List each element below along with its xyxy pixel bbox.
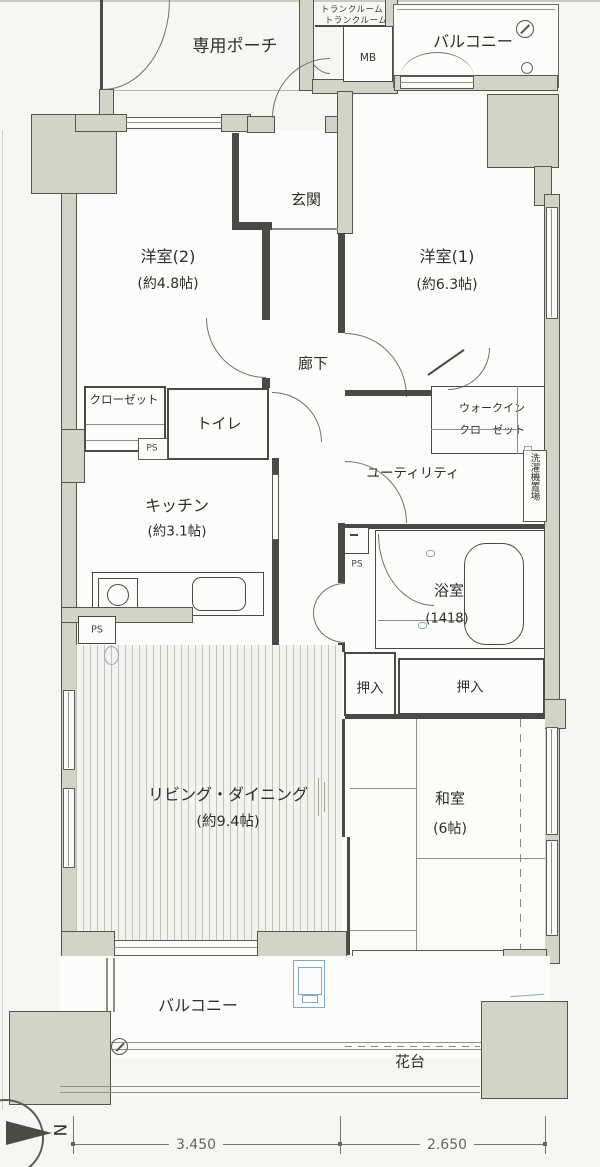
mb-label: MB bbox=[360, 53, 376, 64]
west1-bottom-wall bbox=[345, 390, 431, 396]
west1-size-label: (約6.3帖) bbox=[416, 278, 477, 292]
pencil-mark-2 bbox=[324, 782, 325, 812]
living-left-window-1 bbox=[63, 690, 75, 770]
floor-plan: 専用ポーチ トランクルーム トランクルーム MB バルコニー 玄関 廊下 洋室(… bbox=[0, 0, 600, 1167]
entrance-right-wall bbox=[338, 92, 352, 233]
kitchen-right-wall-b bbox=[272, 540, 279, 652]
ps-box-2-mark bbox=[350, 534, 358, 536]
west2-window-line bbox=[126, 122, 222, 123]
ps-label-3: PS bbox=[91, 625, 103, 635]
drain-icon bbox=[516, 20, 534, 38]
porch-label: 専用ポーチ bbox=[193, 39, 278, 56]
west1-window-line bbox=[551, 209, 552, 317]
living-label: リビング・ダイニング bbox=[148, 787, 308, 803]
scan-edge-left bbox=[2, 130, 3, 1110]
wic-label-1: ウォークイン bbox=[459, 403, 525, 414]
wic-divider-line bbox=[517, 386, 518, 454]
living-left-window-2 bbox=[63, 788, 75, 868]
jroom-sliding-door-1 bbox=[342, 719, 345, 837]
living-balcony-window-line bbox=[114, 947, 260, 948]
closet-label: クローゼット bbox=[90, 394, 159, 406]
bathroom-size-label: (1418) bbox=[425, 613, 468, 626]
balcony-window-line bbox=[400, 82, 474, 83]
right-top-corner-block bbox=[488, 95, 558, 167]
left-wall-jog bbox=[62, 430, 84, 482]
living-mark bbox=[104, 646, 119, 665]
tatami-line-h1 bbox=[350, 788, 416, 789]
living-balcony-window bbox=[114, 940, 260, 956]
stove-burner bbox=[107, 584, 129, 606]
flower-bed-label: 花台 bbox=[395, 1055, 425, 1070]
wall-jog bbox=[232, 222, 272, 230]
tatami-line-h3 bbox=[416, 858, 545, 859]
jroom-top-right-block bbox=[545, 700, 565, 728]
jroom-right-window-line-1 bbox=[551, 729, 552, 833]
compass-needle bbox=[6, 1121, 52, 1145]
kitchen-right-wall-a bbox=[272, 458, 279, 474]
tatami-line-h2 bbox=[350, 930, 416, 931]
living-left-window-line-1 bbox=[68, 692, 69, 768]
dim-line bbox=[73, 1144, 545, 1145]
toilet-label: トイレ bbox=[196, 417, 241, 432]
oshiire-right-label: 押入 bbox=[457, 681, 484, 695]
wic-room bbox=[431, 386, 545, 454]
hallway-label: 廊下 bbox=[298, 357, 328, 372]
bathtub bbox=[464, 543, 524, 645]
wic-shelf-line bbox=[431, 429, 517, 430]
bottom-right-block bbox=[482, 1002, 567, 1098]
sink bbox=[192, 577, 246, 611]
jroom-right-window-1 bbox=[546, 727, 558, 835]
dim-tick-left bbox=[73, 1116, 74, 1154]
ps-label-1: PS bbox=[146, 445, 157, 454]
dim-tick-mid bbox=[340, 1116, 341, 1154]
jroom-top-wall bbox=[345, 714, 545, 719]
balcony-drain-icon bbox=[111, 1038, 128, 1055]
flower-bed-rail-2 bbox=[60, 1092, 480, 1093]
dim-label-left: 3.450 bbox=[169, 1138, 223, 1152]
porch-door-arc bbox=[103, 0, 170, 90]
hall-left-wall-upper bbox=[262, 230, 270, 320]
balcony-rail-line-1 bbox=[95, 1042, 545, 1043]
kitchen-size-label: (約3.1帖) bbox=[147, 525, 206, 539]
balcony-faucet-box bbox=[293, 960, 325, 1008]
hall-wall-stub-top bbox=[338, 575, 345, 583]
hall-left-wall-stub bbox=[262, 378, 270, 388]
entrance-door-arc bbox=[272, 58, 330, 118]
bath-tap-mark-1 bbox=[426, 550, 435, 557]
west2-top-wall-a bbox=[76, 115, 126, 131]
west2-size-label: (約4.8帖) bbox=[137, 277, 198, 291]
entrance-step-line bbox=[272, 228, 338, 230]
kitchen-label: キッチン bbox=[145, 498, 209, 514]
jroom-right-window-line-2 bbox=[551, 842, 552, 934]
entrance-top-wall-a bbox=[248, 117, 274, 132]
closet-shelf-line-1 bbox=[86, 424, 164, 425]
porch-column-line-2 bbox=[113, 958, 115, 1012]
dim-dot-mid bbox=[338, 1142, 342, 1146]
balcony-hole-icon bbox=[521, 62, 533, 74]
balcony-bottom-label: バルコニー bbox=[158, 998, 238, 1014]
living-left-window-line-2 bbox=[68, 790, 69, 866]
jroom-right-window-2 bbox=[546, 840, 558, 936]
porch-jamb bbox=[100, 90, 113, 117]
oshiire-left-label: 押入 bbox=[357, 682, 384, 696]
bathroom-label: 浴室 bbox=[434, 584, 464, 599]
west2-window bbox=[126, 117, 222, 129]
jroom-size-label: (6帖) bbox=[433, 822, 467, 836]
west1-room-label: 洋室(1) bbox=[420, 249, 475, 265]
jroom-label: 和室 bbox=[435, 792, 465, 807]
living-size-label: (約9.4帖) bbox=[196, 815, 259, 830]
kitchen-door bbox=[272, 474, 279, 540]
balcony-rail-line-2 bbox=[95, 1049, 545, 1050]
utility-bottom-wall bbox=[345, 524, 545, 529]
dim-dot-left bbox=[71, 1142, 75, 1146]
bottom-wall-center-block bbox=[258, 932, 346, 956]
west1-left-wall bbox=[338, 233, 345, 333]
west1-window bbox=[546, 207, 558, 319]
west2-room-label: 洋室(2) bbox=[141, 249, 196, 265]
pencil-mark-1 bbox=[318, 778, 319, 816]
entrance-left-wall bbox=[232, 133, 239, 223]
washer-tap-mark bbox=[524, 446, 532, 451]
west2-top-wall-b bbox=[222, 115, 250, 131]
dim-dot-right bbox=[543, 1142, 547, 1146]
balcony-top-rail-line bbox=[397, 9, 555, 10]
jroom-dashed-line bbox=[520, 719, 521, 957]
tatami-line-v bbox=[416, 719, 417, 957]
balcony-top-label: バルコニー bbox=[433, 34, 513, 50]
ps-box-2 bbox=[344, 527, 369, 554]
dim-label-right: 2.650 bbox=[420, 1138, 474, 1152]
trunk-room-label-1: トランクルーム bbox=[321, 6, 384, 15]
flower-bed-rail-1 bbox=[60, 1086, 480, 1087]
washer-label: 洗濯機置場 bbox=[529, 453, 539, 501]
jroom-sliding-door-2 bbox=[347, 837, 350, 955]
trunk-room-label-2: トランクルーム bbox=[325, 17, 388, 26]
bottom-left-block bbox=[10, 1012, 110, 1104]
compass-letter: N bbox=[54, 1124, 71, 1137]
porch-column-line-1 bbox=[106, 958, 108, 1012]
entrance-label: 玄関 bbox=[291, 193, 321, 208]
dim-tick-right bbox=[545, 1116, 546, 1154]
ps-label-2: PS bbox=[351, 561, 362, 570]
flower-bed-dash-line bbox=[345, 1046, 480, 1047]
